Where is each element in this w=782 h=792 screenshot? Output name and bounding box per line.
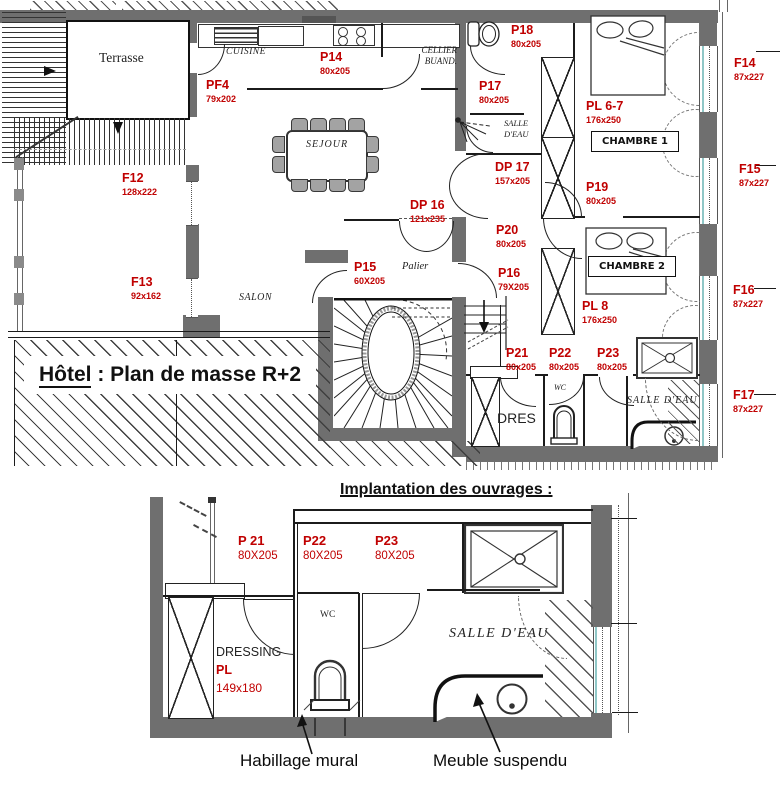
balcony-post-4 bbox=[14, 293, 24, 305]
wall-palier-stub bbox=[305, 250, 348, 263]
habillage-arrow bbox=[294, 714, 320, 756]
wall-palier-east bbox=[452, 217, 466, 262]
roof-slope-arrow-down bbox=[113, 122, 123, 134]
detail-boundary-line-1 bbox=[293, 509, 593, 511]
chair bbox=[348, 179, 365, 192]
opening-label-f14: F1487x227 bbox=[734, 56, 764, 83]
wall-wc-west bbox=[543, 376, 545, 446]
detail-window-dotted bbox=[602, 627, 603, 713]
wall-junction-block bbox=[183, 315, 220, 337]
opening-label-f13: F1392x162 bbox=[131, 275, 161, 302]
detail-window-glass bbox=[595, 627, 597, 713]
chair bbox=[291, 118, 308, 131]
opening-label-p22: P2280x205 bbox=[549, 346, 579, 373]
plan-title-box: Hôtel : Plan de masse R+2 bbox=[24, 356, 316, 394]
window-f13-glass-line bbox=[191, 279, 192, 317]
room-label-chambre1: CHAMBRE 1 bbox=[591, 131, 679, 152]
opening-label-p17: P1780x205 bbox=[479, 79, 509, 106]
detail-shower-left-line bbox=[462, 523, 464, 593]
stove-burner-4 bbox=[356, 36, 366, 46]
opening-label-p19: P1980x205 bbox=[586, 180, 616, 207]
detail-boundary-vert-1 bbox=[293, 509, 295, 597]
detail-facade-tick-1 bbox=[611, 518, 637, 519]
balcony-rail-line-1 bbox=[17, 157, 18, 332]
door-arc-p21 bbox=[500, 377, 536, 407]
opening-label-dp16: DP 16121x235 bbox=[410, 198, 445, 225]
window-f14-dotted bbox=[709, 46, 710, 112]
detail-title: Implantation des ouvrages : bbox=[340, 481, 552, 499]
wall-corridor-south-b bbox=[623, 216, 700, 218]
annotation-meuble-suspendu: Meuble suspendu bbox=[433, 751, 567, 771]
meuble-arrow bbox=[470, 692, 504, 754]
chair bbox=[366, 156, 379, 173]
opening-label-pf4: PF479x202 bbox=[206, 78, 236, 105]
masonry-hatch-under-stair bbox=[318, 441, 480, 466]
wardrobe-dres bbox=[471, 377, 500, 447]
detail-label-pl-size: 149x180 bbox=[216, 681, 262, 695]
window-f14-glass bbox=[702, 46, 704, 112]
detail-room-label-wc: WC bbox=[320, 610, 335, 620]
hatch-band-left-edge bbox=[14, 340, 15, 466]
terrace-label: Terrasse bbox=[99, 50, 144, 66]
bed-chambre1 bbox=[590, 15, 668, 97]
opening-label-f15: F1587x227 bbox=[739, 162, 769, 189]
wardrobe-pl8 bbox=[541, 248, 575, 335]
room-label-salle-eau1-line1: SALLE bbox=[504, 118, 528, 128]
spiral-staircase bbox=[334, 298, 452, 428]
detail-label-p23: P2380X205 bbox=[375, 533, 415, 564]
door-arc-dp16-leaf1 bbox=[399, 221, 427, 252]
detail-frag-line-1 bbox=[210, 497, 211, 585]
detail-frag-tick bbox=[208, 497, 216, 503]
wall-cuisine-south-b bbox=[421, 88, 458, 90]
wall-wc-north-b bbox=[535, 374, 548, 376]
detail-wardrobe bbox=[168, 597, 214, 719]
balcony-floor-line-1 bbox=[8, 331, 330, 332]
wall-salon-west-b bbox=[186, 224, 199, 278]
chair bbox=[272, 136, 285, 153]
window-f16-dotted bbox=[709, 276, 710, 340]
stove bbox=[333, 25, 375, 46]
detail-facade-line bbox=[628, 493, 629, 733]
facade-outline-line bbox=[722, 12, 723, 458]
room-label-cellier-line2: BUAND. bbox=[425, 56, 457, 66]
floor-plan-drawing: Terrasse bbox=[0, 0, 782, 792]
opening-label-pl8: PL 8176x250 bbox=[582, 299, 617, 326]
roof-tick-hatch-left bbox=[30, 1, 116, 10]
door-arc-pf4 bbox=[198, 44, 225, 75]
shower-tray-main bbox=[636, 337, 698, 379]
detail-frag-dash-1 bbox=[179, 501, 206, 517]
kitchen-cabinet bbox=[302, 16, 336, 23]
detail-room-label-dressing: DRESSING bbox=[216, 645, 281, 659]
room-label-chambre2: CHAMBRE 2 bbox=[588, 256, 676, 277]
room-label-sejour: SEJOUR bbox=[306, 139, 348, 150]
chair bbox=[348, 118, 365, 131]
small-stair bbox=[464, 296, 512, 350]
detail-window-right bbox=[593, 627, 611, 713]
opening-label-f12: F12128x222 bbox=[122, 171, 157, 198]
door-arc-p18 bbox=[470, 46, 505, 75]
detail-wall-right-top bbox=[591, 505, 612, 627]
window-f13-west bbox=[186, 278, 198, 318]
room-label-salon: SALON bbox=[239, 292, 272, 303]
detail-label-p22: P2280X205 bbox=[303, 533, 343, 564]
room-label-dres: DRES bbox=[497, 410, 536, 426]
annotation-habillage-mural: Habillage mural bbox=[240, 751, 358, 771]
window-f16 bbox=[699, 276, 718, 340]
door-arc-p16 bbox=[458, 263, 497, 298]
detail-facade-tick-2 bbox=[611, 623, 637, 624]
room-label-palier: Palier bbox=[402, 261, 428, 272]
plan-title-rest: : Plan de masse R+2 bbox=[91, 363, 301, 386]
balcony-post-2 bbox=[14, 189, 24, 201]
room-label-salle-eau1-line2: D'EAU bbox=[504, 129, 528, 139]
opening-label-pl67: PL 6-7176x250 bbox=[586, 99, 623, 126]
door-arc-p19 bbox=[545, 182, 582, 217]
detail-facade-tick-3 bbox=[612, 712, 638, 713]
dining-table bbox=[286, 130, 368, 182]
detail-door-arc-wc bbox=[362, 593, 420, 649]
window-f16-glass bbox=[702, 276, 704, 340]
opening-label-p18: P1880x205 bbox=[511, 23, 541, 50]
wall-cuisine-south-a bbox=[247, 88, 383, 90]
roof-dashed-line bbox=[14, 149, 186, 150]
window-f15-dotted bbox=[709, 158, 710, 224]
chair bbox=[272, 156, 285, 173]
wall-salon-west-a bbox=[186, 165, 199, 181]
roof-slope-arrow-right bbox=[44, 66, 56, 76]
opening-label-p20: P2080x205 bbox=[496, 223, 526, 250]
window-f15-glass bbox=[702, 158, 704, 224]
room-label-salle-eau1: SALLED'EAU bbox=[504, 118, 528, 139]
chair bbox=[291, 179, 308, 192]
facade-tick-1 bbox=[756, 51, 780, 52]
wall-wc-north-c bbox=[583, 374, 598, 376]
detail-dressing-top-line bbox=[163, 595, 293, 597]
window-f12-glass-line bbox=[191, 182, 192, 225]
opening-label-p21: P2180x205 bbox=[506, 346, 536, 373]
roof-tick-hatch-top bbox=[122, 1, 338, 10]
terrace-room bbox=[66, 20, 190, 120]
detail-facade-dotted bbox=[618, 505, 619, 715]
window-f12-west bbox=[186, 181, 198, 226]
opening-label-p16: P1679X205 bbox=[498, 266, 529, 293]
room-label-cellier: CELLIERBUAND. bbox=[413, 45, 457, 67]
window-f15 bbox=[699, 158, 718, 224]
room-label-cuisine: CUISINE bbox=[226, 47, 266, 57]
facade-top-line-2 bbox=[727, 0, 728, 12]
detail-vanity-shelf-line bbox=[427, 589, 540, 591]
balcony-floor-line-2 bbox=[8, 337, 330, 338]
detail-shower-tray bbox=[464, 524, 564, 594]
door-arc-dp17-leaf2 bbox=[449, 186, 488, 219]
opening-label-dp17: DP 17157x205 bbox=[495, 160, 530, 187]
detail-partition-a2 bbox=[297, 597, 298, 717]
chair bbox=[366, 136, 379, 153]
room-label-wc: WC bbox=[554, 383, 566, 392]
detail-wc-top-line bbox=[297, 592, 359, 594]
plan-title-underlined-word: Hôtel bbox=[39, 363, 92, 388]
room-label-salle-eau2: SALLE D'EAU bbox=[627, 395, 698, 406]
opening-label-f16: F1687x227 bbox=[733, 283, 763, 310]
chair bbox=[310, 179, 327, 192]
wall-bottom-tick-hatch bbox=[466, 462, 718, 470]
detail-wall-left bbox=[150, 497, 163, 737]
opening-label-p15: P1560X205 bbox=[354, 260, 385, 287]
chair bbox=[329, 118, 346, 131]
door-arc-p17 bbox=[466, 126, 493, 153]
balcony-rail-line-2 bbox=[22, 157, 23, 332]
window-f17-glass bbox=[702, 384, 704, 446]
wall-wc-east bbox=[583, 376, 585, 446]
opening-label-p23: P2380x205 bbox=[597, 346, 627, 373]
window-f14 bbox=[699, 46, 718, 112]
detail-label-pl-name: PL bbox=[216, 663, 232, 677]
door-arc-dp17-leaf1 bbox=[449, 153, 488, 186]
door-arc-p15 bbox=[312, 270, 347, 303]
detail-boundary-vert-2 bbox=[297, 522, 298, 597]
wardrobe-pl67-upper bbox=[541, 57, 575, 139]
window-f17 bbox=[699, 384, 718, 446]
room-label-cellier-line1: CELLIER bbox=[421, 45, 457, 55]
wall-palier-north bbox=[344, 219, 399, 221]
chair bbox=[329, 179, 346, 192]
balcony-post-1 bbox=[14, 158, 24, 170]
sink-drainer bbox=[214, 27, 258, 45]
detail-room-label-salle-eau: SALLE D'EAU bbox=[449, 626, 549, 642]
wall-cellier-west bbox=[381, 23, 383, 57]
opening-label-p14: P1480x205 bbox=[320, 50, 350, 77]
window-f17-dotted bbox=[709, 384, 710, 446]
detail-wall-right-bottom bbox=[591, 713, 612, 738]
opening-label-f17: F1787x227 bbox=[733, 388, 763, 415]
detail-label-p21: P 2180X205 bbox=[238, 533, 278, 564]
sink-basin bbox=[258, 26, 304, 46]
facade-top-line-1 bbox=[719, 0, 720, 12]
detail-frag-line-2 bbox=[214, 497, 215, 585]
stove-burner-3 bbox=[338, 36, 348, 46]
chair bbox=[310, 118, 327, 131]
balcony-post-3 bbox=[14, 256, 24, 268]
wall-stair-bottom bbox=[318, 428, 466, 441]
door-arc-dp16-leaf2 bbox=[426, 221, 454, 252]
plan-title: Hôtel : Plan de masse R+2 bbox=[39, 363, 301, 387]
